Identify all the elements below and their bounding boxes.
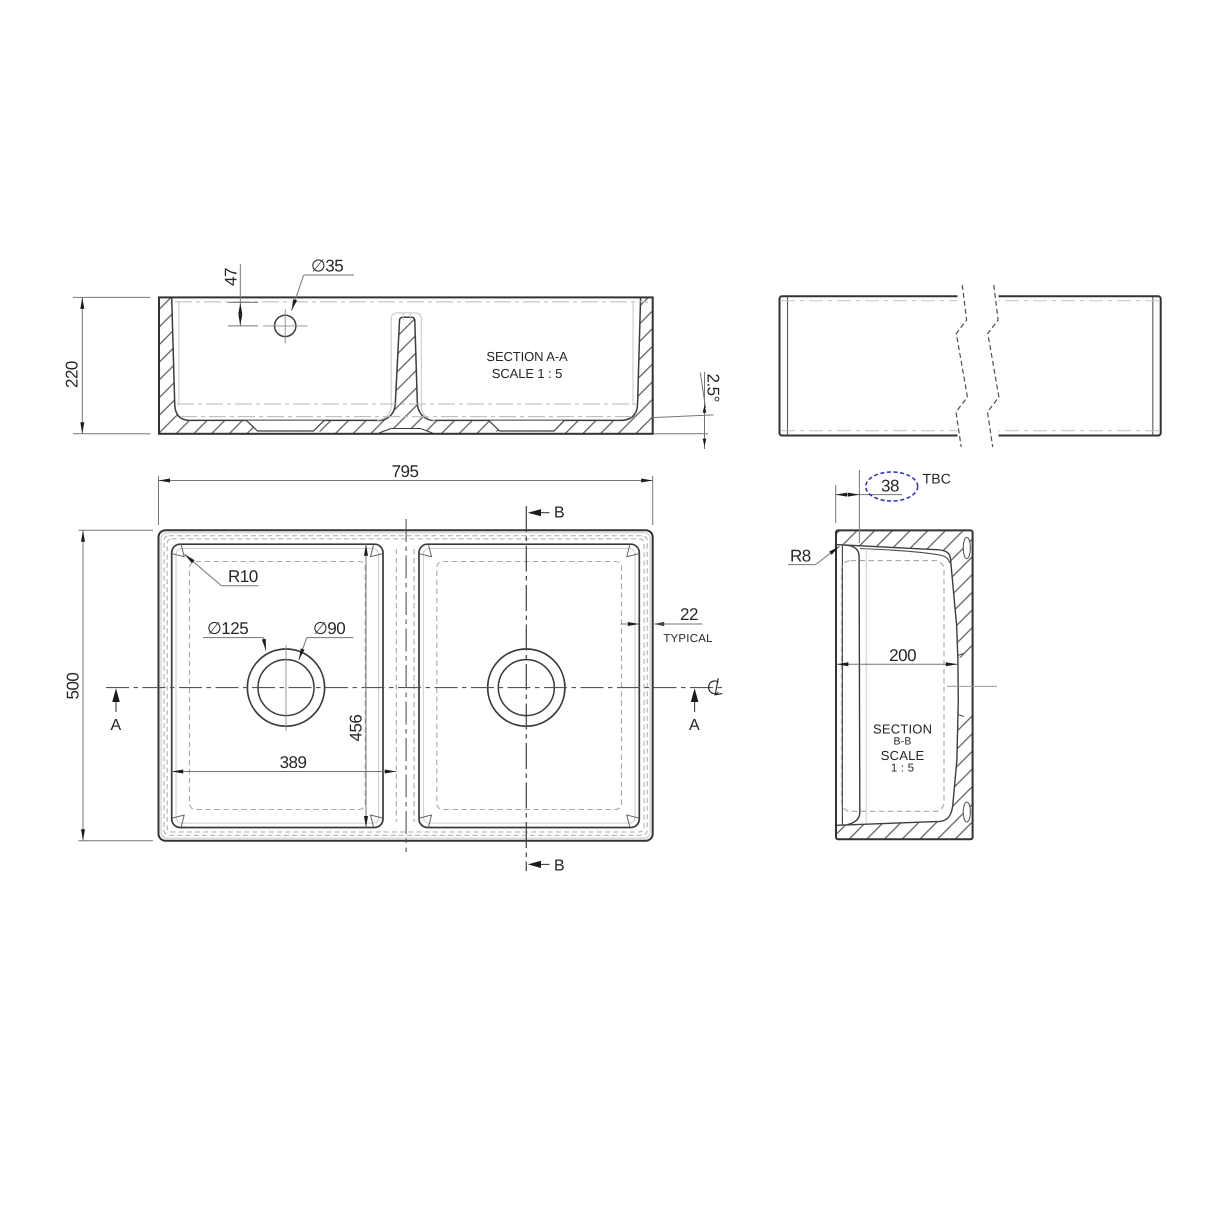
svg-text:B: B xyxy=(554,505,565,522)
svg-text:38: 38 xyxy=(881,477,899,496)
svg-text:TYPICAL: TYPICAL xyxy=(663,633,713,645)
svg-text:389: 389 xyxy=(280,753,307,772)
svg-text:SECTION A-A: SECTION A-A xyxy=(486,349,568,364)
svg-text:TBC: TBC xyxy=(923,471,952,487)
svg-text:795: 795 xyxy=(392,462,419,481)
svg-text:R8: R8 xyxy=(790,547,811,566)
svg-text:200: 200 xyxy=(889,646,916,665)
svg-text:B-B: B-B xyxy=(894,736,912,748)
svg-text:∅125: ∅125 xyxy=(207,619,248,638)
svg-text:A: A xyxy=(689,717,700,734)
svg-text:500: 500 xyxy=(64,673,83,700)
svg-text:2.5°: 2.5° xyxy=(704,374,723,402)
svg-text:SCALE 1 : 5: SCALE 1 : 5 xyxy=(492,366,562,381)
svg-text:22: 22 xyxy=(680,605,698,624)
svg-text:1 : 5: 1 : 5 xyxy=(891,763,914,775)
svg-text:R10: R10 xyxy=(228,567,258,586)
svg-text:47: 47 xyxy=(222,268,241,286)
svg-text:220: 220 xyxy=(63,361,82,388)
svg-text:SECTION: SECTION xyxy=(873,722,932,737)
svg-text:∅35: ∅35 xyxy=(311,257,343,276)
svg-text:SCALE: SCALE xyxy=(881,748,925,763)
svg-text:∅90: ∅90 xyxy=(313,619,345,638)
svg-text:A: A xyxy=(111,717,122,734)
svg-text:B: B xyxy=(554,858,565,875)
svg-text:456: 456 xyxy=(347,715,366,742)
